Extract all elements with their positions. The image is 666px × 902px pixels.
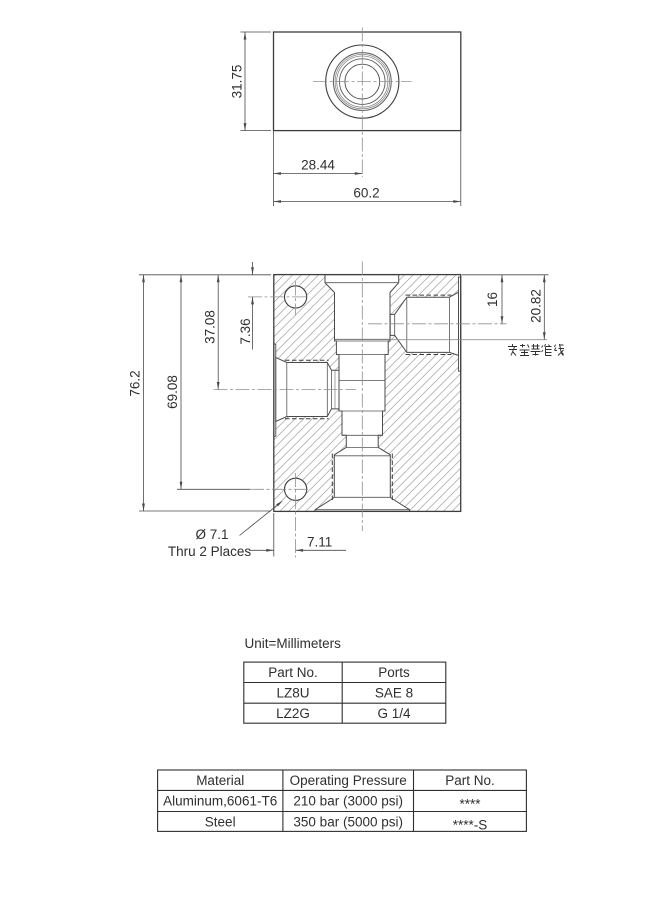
svg-text:20.82: 20.82 [529, 289, 544, 323]
svg-text:Unit=Millimeters: Unit=Millimeters [245, 636, 342, 651]
svg-text:G 1/4: G 1/4 [377, 706, 411, 721]
svg-text:60.2: 60.2 [353, 185, 379, 200]
svg-text:SAE 8: SAE 8 [375, 686, 413, 701]
svg-text:Aluminum,6061-T6: Aluminum,6061-T6 [163, 794, 277, 809]
svg-text:76.2: 76.2 [127, 370, 142, 396]
svg-text:210 bar (3000 psi): 210 bar (3000 psi) [293, 794, 403, 809]
svg-text:69.08: 69.08 [165, 375, 180, 409]
svg-text:7.36: 7.36 [238, 318, 253, 344]
svg-text:37.08: 37.08 [202, 310, 217, 344]
svg-text:Ø 7.1: Ø 7.1 [195, 527, 228, 542]
svg-text:350 bar (5000 psi): 350 bar (5000 psi) [293, 814, 403, 829]
svg-text:Part No.: Part No. [445, 773, 495, 788]
svg-text:LZ2G: LZ2G [276, 706, 310, 721]
svg-text:Part No.: Part No. [268, 665, 318, 680]
svg-text:Ports: Ports [378, 665, 410, 680]
svg-text:****: **** [459, 797, 481, 812]
svg-text:28.44: 28.44 [301, 157, 335, 172]
svg-text:7.11: 7.11 [307, 534, 332, 549]
svg-text:31.75: 31.75 [229, 65, 244, 99]
svg-text:Material: Material [196, 773, 244, 788]
svg-text:LZ8U: LZ8U [276, 686, 309, 701]
svg-text:Steel: Steel [205, 814, 236, 829]
svg-text:****-S: ****-S [453, 817, 488, 832]
svg-text:Operating Pressure: Operating Pressure [290, 773, 407, 788]
svg-text:Thru 2 Places: Thru 2 Places [168, 544, 252, 559]
svg-text:16: 16 [485, 292, 500, 307]
